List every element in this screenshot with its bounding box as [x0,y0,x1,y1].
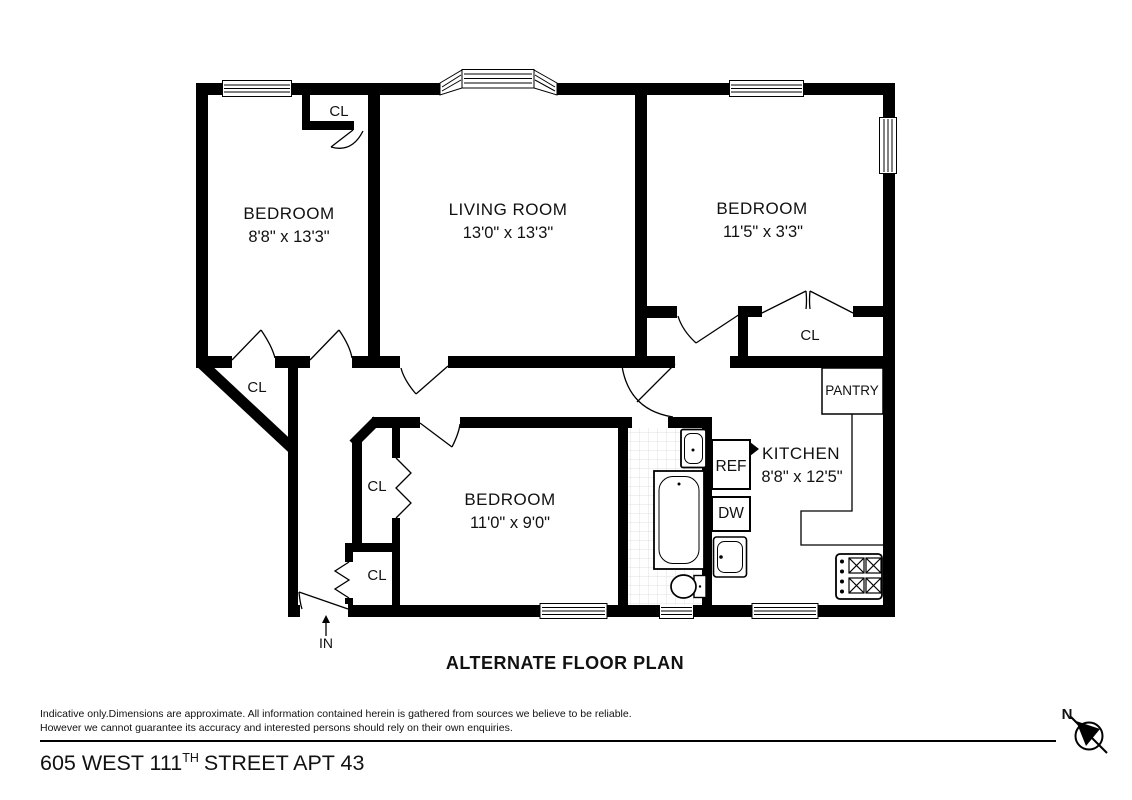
wall-segment [557,83,730,95]
wall-bed3-closet [345,543,400,552]
door-closet-diagonal [232,330,275,360]
wall-closet1 [302,121,354,130]
window-bed2-right [880,118,897,174]
wall-segment [730,356,895,368]
wall-diagonal-closet [201,363,293,449]
door-bed1-hall [310,330,352,360]
closet-label-bed3-upper: CL [367,478,386,495]
wall-divider-bed1-living [368,95,380,368]
entry-label: IN [319,635,333,651]
wall-stub [853,306,883,317]
door-stop-wedge [750,442,759,456]
bathroom-sink [681,430,706,468]
window-kitchen-bottom [752,604,818,619]
toilet [671,575,706,598]
floor-plan-page: BEDROOM 8'8" x 13'3" LIVING ROOM 13'0" x… [0,0,1132,800]
wall-left [196,83,208,368]
wall-bed3-top [460,417,632,428]
bathroom [628,428,706,605]
floor-plan-canvas: BEDROOM 8'8" x 13'3" LIVING ROOM 13'0" x… [0,0,1132,800]
wall-divider-living-bed2 [635,95,647,368]
bathtub [654,471,704,569]
window-bed2-top [730,81,804,97]
compass-north-label: N [1062,706,1073,723]
bedroom-bottom-name: BEDROOM [464,490,555,509]
window-bath-bottom [660,604,694,619]
wall-bed3-closet [392,422,400,458]
door-closet-bed1 [331,130,363,148]
bedroom-top-left-dims: 8'8" x 13'3" [248,228,329,246]
bedroom-top-right-dims: 11'5" x 3'3" [723,223,803,241]
bedroom-top-left-name: BEDROOM [243,204,334,223]
wall-hallway [288,362,298,617]
bedroom-top-right-name: BEDROOM [716,199,807,218]
door-kitchen-passage [622,364,675,417]
window-bed3-bottom [540,604,607,619]
closet-label-bed1: CL [329,103,348,120]
bifold-closet-bed3-left [335,562,349,598]
closet-label-bed2: CL [800,327,819,344]
windows [223,70,897,619]
kitchen-sink [714,537,747,577]
wall-bed3-closet [352,440,362,546]
compass-icon: N [1062,706,1107,753]
door-bed3 [420,423,460,447]
door-bed2-closet-double [762,291,853,313]
door-living [401,366,448,394]
plan-title: ALTERNATE FLOOR PLAN [446,653,684,673]
pantry-label: PANTRY [825,383,879,398]
wall-bed2-bottom [647,306,677,318]
wall-segment [352,356,400,368]
disclaimer-line1: Indicative only.Dimensions are approxima… [40,708,632,720]
address-superscript: TH [182,751,199,765]
stove [836,554,882,599]
entry-arrow-icon [322,615,330,636]
wall-bath-left [618,417,628,617]
walls [196,83,895,617]
wall-bed3-closet [345,548,353,562]
address-prefix: 605 WEST 111 [40,751,182,775]
kitchen-dims: 8'8" x 12'5" [761,468,842,486]
bifold-closet-bed3-right [396,458,411,518]
bay-window [440,70,557,96]
address-suffix: STREET APT 43 [204,751,365,775]
door-bed2 [678,314,740,343]
closet-label-diagonal: CL [247,379,266,396]
refrigerator-label: REF [716,458,747,475]
living-room-dims: 13'0" x 13'3" [463,224,554,242]
wall-stub [748,306,762,317]
living-room-name: LIVING ROOM [449,200,568,219]
kitchen-name: KITCHEN [762,444,840,463]
window-bed1-top [223,81,292,97]
wall-bed2-closet [738,306,748,368]
bedroom-bottom-dims: 11'0" x 9'0" [470,514,550,532]
dishwasher-label: DW [718,505,744,522]
wall-segment [292,83,440,95]
wall-bed3-closet [392,548,400,617]
disclaimer-line2: However we cannot guarantee its accuracy… [40,722,513,734]
wall-segment [803,83,895,95]
address: 605 WEST 111THSTREET APT 43 [40,751,364,775]
footer: Indicative only.Dimensions are approxima… [40,708,1056,775]
closet-label-bed3-lower: CL [367,567,386,584]
